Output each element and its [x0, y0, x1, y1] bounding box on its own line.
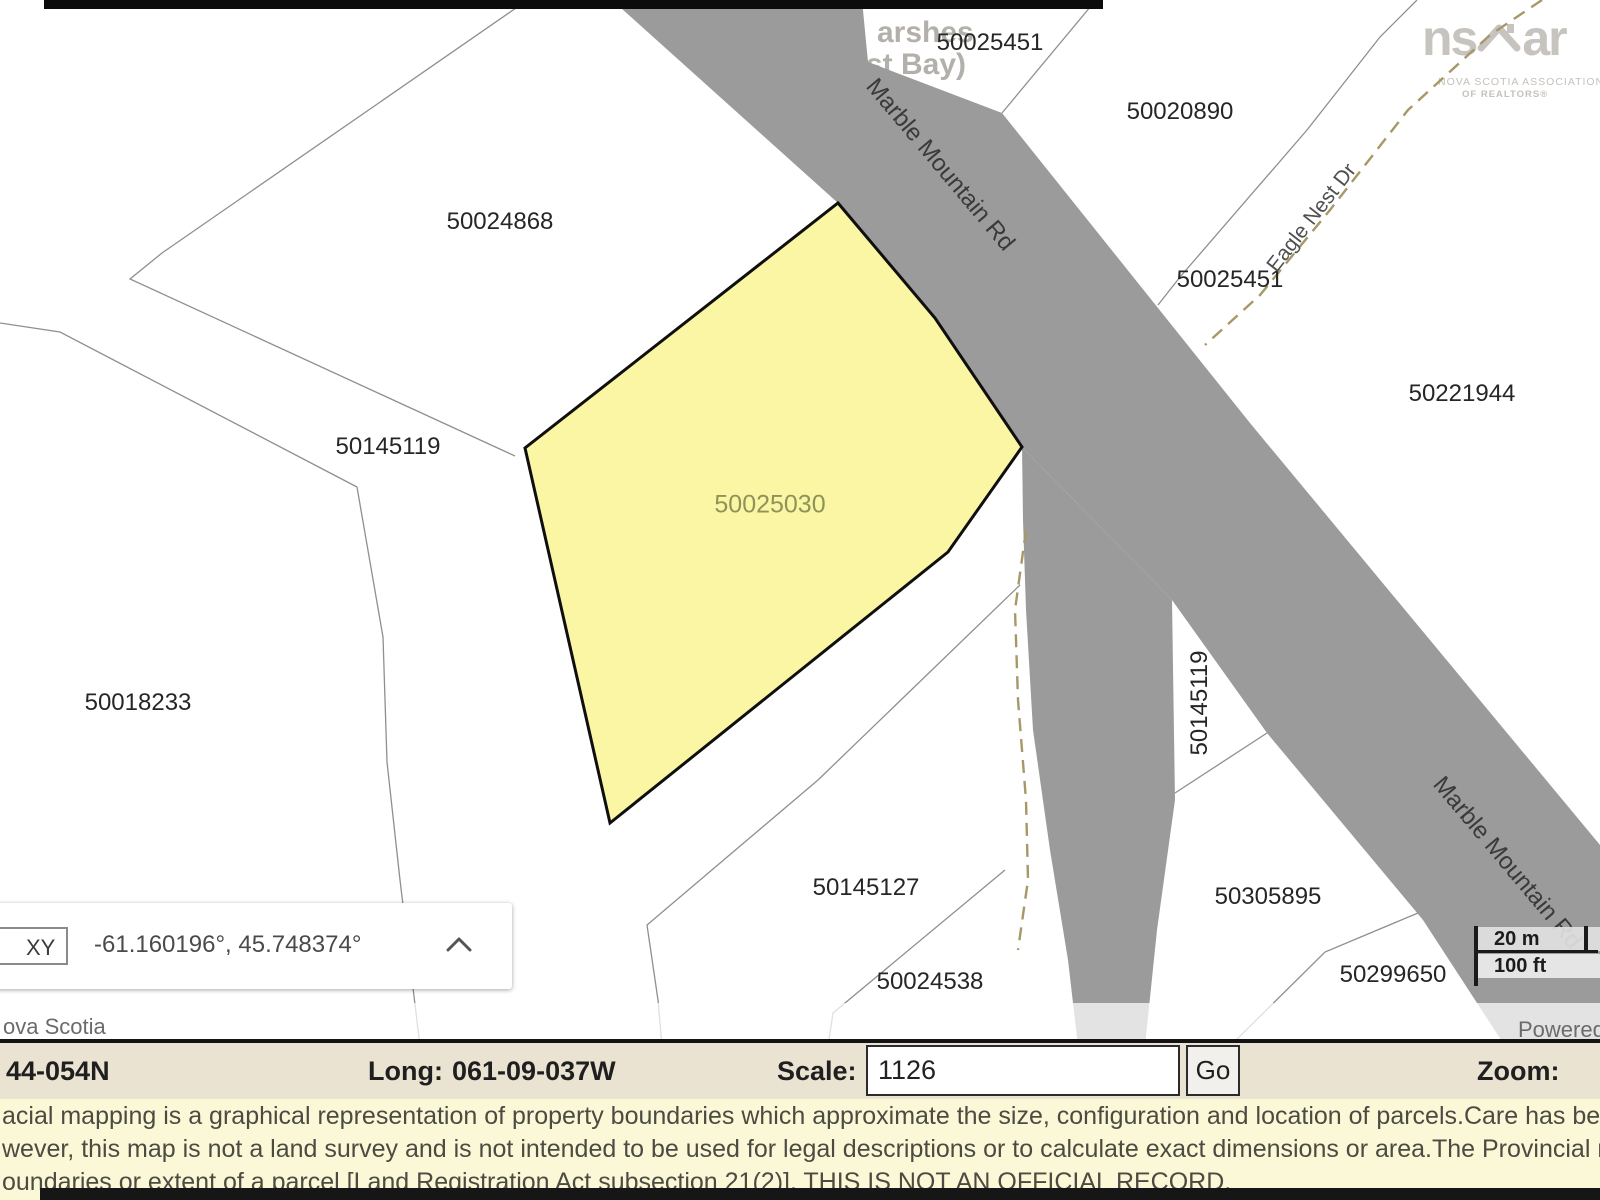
long-label: Long:: [368, 1056, 443, 1087]
long-value: 061-09-037W: [452, 1056, 616, 1087]
collapse-chevron-icon[interactable]: [446, 935, 472, 953]
zoom-label: Zoom:: [1477, 1056, 1559, 1087]
scale-bar: 20 m 100 ft: [1474, 924, 1600, 990]
coordinate-readout: -61.160196°, 45.748374°: [94, 931, 361, 959]
attribution-left: ova Scotia: [3, 1014, 106, 1040]
status-bar: 44-054N Long: 061-09-037W Scale: Go Zoom…: [0, 1039, 1600, 1099]
disclaimer-line: wever, this map is not a land survey and…: [2, 1135, 1600, 1164]
map-canvas[interactable]: arshes st Bay): [0, 0, 1600, 1046]
scale-bar-right-tick: [1584, 926, 1588, 953]
scale-bar-left-tick: [1474, 926, 1478, 986]
lat-value: 44-054N: [6, 1056, 110, 1087]
map-application-window: ns ar NOVA SCOTIA ASSOCIATION OF REALTOR…: [0, 0, 1600, 1200]
scale-bar-mid-line: [1474, 950, 1598, 953]
disclaimer-line: acial mapping is a graphical representat…: [2, 1102, 1600, 1131]
coordinate-mode-select[interactable]: XY: [0, 927, 68, 965]
horizontal-scrollbar[interactable]: [40, 1188, 1600, 1200]
go-button[interactable]: Go: [1186, 1045, 1240, 1096]
scale-label: Scale:: [777, 1056, 857, 1087]
scale-bar-imperial: 100 ft: [1478, 954, 1600, 978]
scale-bar-metric: 20 m: [1478, 927, 1600, 951]
scale-input[interactable]: [866, 1045, 1180, 1096]
top-black-strip: [44, 0, 1103, 9]
coordinate-widget: XY -61.160196°, 45.748374°: [0, 903, 512, 989]
water-label-fragment-1: arshes: [877, 16, 974, 49]
disclaimer-panel: acial mapping is a graphical representat…: [0, 1095, 1600, 1200]
